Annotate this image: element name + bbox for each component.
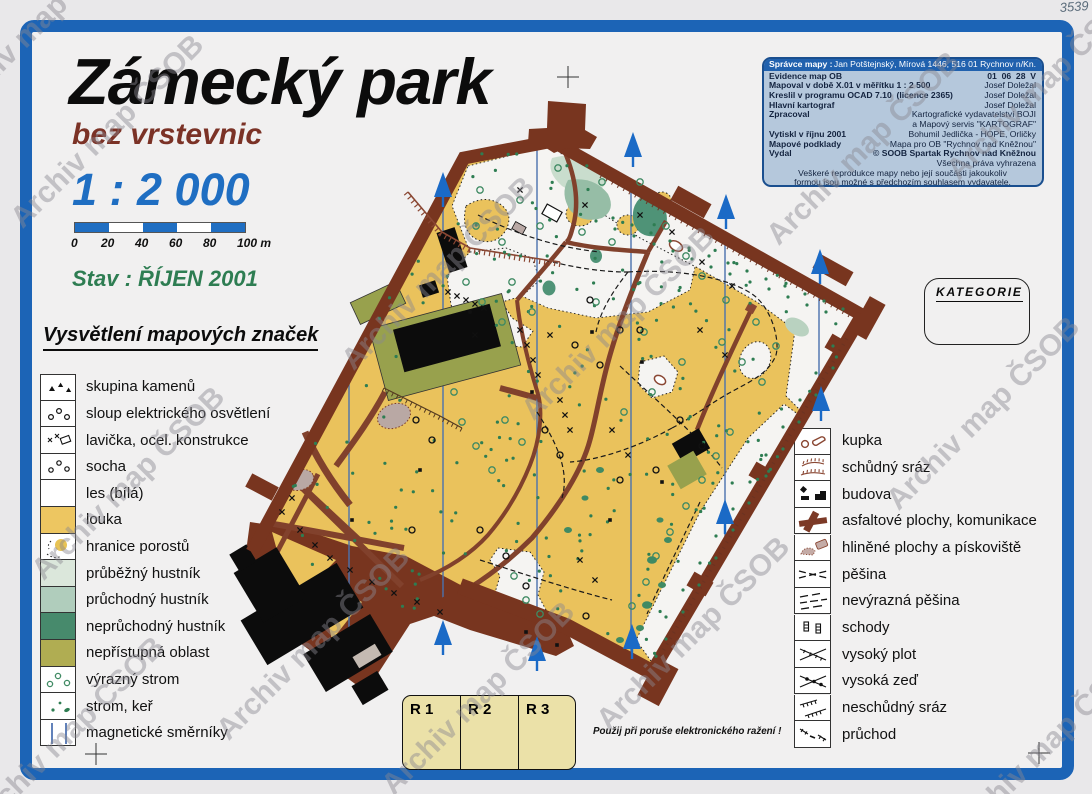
svg-text:3539: 3539 — [1059, 0, 1089, 15]
